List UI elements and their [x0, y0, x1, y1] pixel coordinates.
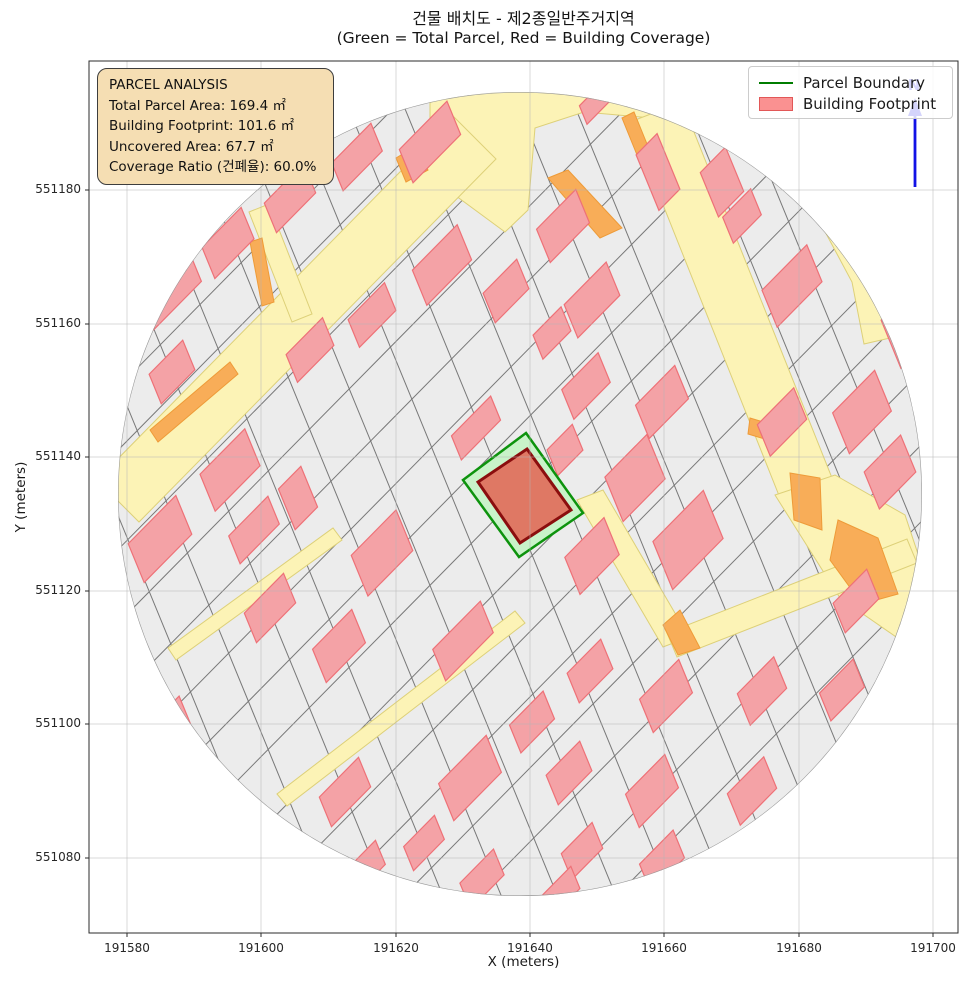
- analysis-title: PARCEL ANALYSIS: [109, 75, 322, 96]
- y-tick-label: 551180: [26, 182, 81, 196]
- x-tick-label: 191680: [759, 941, 839, 955]
- y-tick-label: 551120: [26, 583, 81, 597]
- x-tick-label: 191700: [893, 941, 969, 955]
- y-tick-label: 551160: [26, 316, 81, 330]
- legend-row-parcel-boundary: Parcel Boundary: [759, 72, 942, 93]
- legend: Parcel Boundary Building Footprint: [748, 66, 953, 119]
- y-tick-label: 551140: [26, 449, 81, 463]
- legend-patch-swatch: [759, 97, 793, 111]
- y-axis-label: Y (meters): [13, 462, 29, 533]
- x-tick-label: 191620: [356, 941, 436, 955]
- x-tick-label: 191640: [490, 941, 570, 955]
- x-tick-label: 191660: [624, 941, 704, 955]
- legend-label-parcel-boundary: Parcel Boundary: [803, 74, 925, 92]
- legend-line-swatch: [759, 82, 793, 84]
- legend-label-building-footprint: Building Footprint: [803, 95, 936, 113]
- y-tick-label: 551100: [26, 716, 81, 730]
- analysis-line-total-area: Total Parcel Area: 169.4 ㎡: [109, 96, 322, 117]
- parcel-analysis-box: PARCEL ANALYSIS Total Parcel Area: 169.4…: [97, 68, 334, 185]
- analysis-line-footprint: Building Footprint: 101.6 ㎡: [109, 116, 322, 137]
- analysis-line-uncovered: Uncovered Area: 67.7 ㎡: [109, 137, 322, 158]
- x-axis-label: X (meters): [89, 954, 958, 970]
- x-tick-label: 191600: [221, 941, 301, 955]
- analysis-line-coverage: Coverage Ratio (건폐율): 60.0%: [109, 157, 322, 178]
- x-tick-label: 191580: [87, 941, 167, 955]
- legend-row-building-footprint: Building Footprint: [759, 93, 942, 114]
- y-tick-label: 551080: [26, 850, 81, 864]
- building: [858, 224, 898, 287]
